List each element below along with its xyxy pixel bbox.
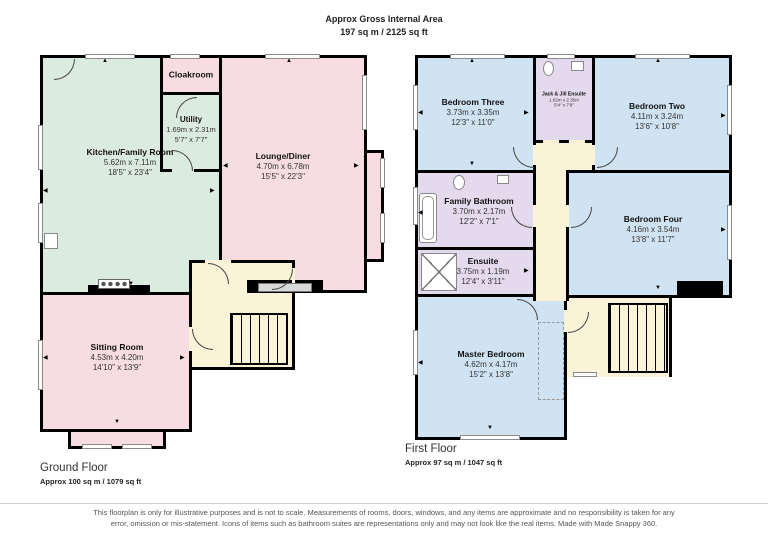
window-symbol <box>82 444 112 449</box>
measure-arrow-icon: ▶ <box>524 110 529 116</box>
measure-arrow-icon: ▶ <box>524 268 529 274</box>
floor-area: Approx 100 sq m / 1079 sq ft <box>40 477 141 486</box>
measure-arrow-icon: ▶ <box>210 188 215 194</box>
door-opening <box>564 310 567 332</box>
window-symbol <box>413 187 418 225</box>
bathtub-icon <box>419 193 437 243</box>
room-imperial: 15'5" x 22'3" <box>261 173 305 182</box>
room-metric: 3.70m x 2.17m <box>453 207 506 216</box>
room-imperial: 15'2" x 13'8" <box>469 371 513 380</box>
room-metric: 3.73m x 3.35m <box>447 108 500 117</box>
room-imperial: 12'2" x 7'1" <box>459 218 498 227</box>
measure-arrow-icon: ▶ <box>354 163 359 169</box>
measure-arrow-icon: ▶ <box>721 113 726 119</box>
door-opening <box>569 140 585 143</box>
room-imperial: 5'4" x 7'9" <box>554 103 574 108</box>
sink-icon <box>44 233 58 249</box>
room-label: Master Bedroom 4.62m x 4.17m 15'2" x 13'… <box>457 349 524 381</box>
window-symbol <box>727 205 732 260</box>
room-metric: 4.53m x 4.20m <box>91 353 144 362</box>
gross-area-value: 197 sq m / 2125 sq ft <box>0 26 768 39</box>
window-symbol <box>38 203 43 243</box>
window-symbol <box>380 158 385 188</box>
basin-icon <box>497 175 509 184</box>
room-name: Bedroom Four <box>624 214 683 225</box>
room-label: Ensuite 3.75m x 1.19m 12'4" x 3'11" <box>457 256 510 288</box>
room-imperial: 13'6" x 10'8" <box>635 123 679 132</box>
measure-arrow-icon: ▼ <box>128 281 134 287</box>
measure-arrow-icon: ◀ <box>418 360 423 366</box>
measure-arrow-icon: ▶ <box>721 227 726 233</box>
basin-icon <box>571 61 584 71</box>
window-symbol <box>38 125 43 170</box>
room-label: Jack & Jill Ensuite 1.62m x 2.35m 5'4" x… <box>542 92 586 109</box>
room-metric: 3.75m x 1.19m <box>457 267 510 276</box>
measure-arrow-icon: ◀ <box>418 110 423 116</box>
window-symbol <box>85 54 135 59</box>
room-name: Kitchen/Family Room <box>87 147 174 158</box>
ground-floor-plan: ▲ ▼ ◀ ▶ ▲ ▶ ◀ ▼ ◀ ▶ Kitchen/Family Room … <box>30 55 405 450</box>
gross-area-title: Approx Gross Internal Area <box>0 13 768 26</box>
room-label: Kitchen/Family Room 5.62m x 7.11m 18'5" … <box>87 147 174 179</box>
room-metric: 1.62m x 2.35m <box>549 98 579 103</box>
room-label: Bedroom Two 4.11m x 3.24m 13'6" x 10'8" <box>629 101 685 133</box>
window-symbol <box>460 435 520 440</box>
room-imperial: 13'8" x 11'7" <box>631 236 674 245</box>
room-name: Cloakroom <box>169 69 213 80</box>
room-label: Family Bathroom 3.70m x 2.17m 12'2" x 7'… <box>444 196 513 228</box>
stairs-symbol <box>230 313 288 365</box>
window-symbol <box>450 54 505 59</box>
window-symbol <box>413 330 418 375</box>
window-symbol <box>170 54 200 59</box>
plan-header: Approx Gross Internal Area 197 sq m / 21… <box>0 13 768 38</box>
ground-floor-caption: Ground Floor Approx 100 sq m / 1079 sq f… <box>40 462 141 486</box>
room-metric: 4.70m x 6.78m <box>257 162 310 171</box>
room-name: Sitting Room <box>91 342 144 353</box>
room-metric: 4.16m x 3.54m <box>627 225 680 234</box>
room-name: Bedroom Three <box>442 97 505 108</box>
measure-arrow-icon: ▲ <box>286 58 292 64</box>
room-name: Utility <box>166 115 216 125</box>
first-floor-plan: ▲ ▼ ◀ ▶ ▲ ▶ ▶ ▼ ◀ ▶ ◀ ▼ Bedroom Three 3.… <box>405 55 750 440</box>
window-symbol <box>727 85 732 135</box>
footer-divider <box>0 503 768 504</box>
room-metric: 4.11m x 3.24m <box>631 112 683 121</box>
first-floor-caption: First Floor Approx 97 sq m / 1047 sq ft <box>405 443 502 467</box>
room-imperial: 18'5" x 23'4" <box>108 169 152 178</box>
measure-arrow-icon: ◀ <box>418 210 423 216</box>
measure-arrow-icon: ▼ <box>487 425 493 431</box>
floor-name: First Floor <box>405 443 502 455</box>
window-symbol <box>635 54 690 59</box>
window-symbol <box>265 54 320 59</box>
measure-arrow-icon: ▲ <box>655 58 661 64</box>
room-name: Master Bedroom <box>457 349 524 360</box>
disclaimer-text: This floorplan is only for illustrative … <box>84 508 684 530</box>
door-opening <box>543 140 559 143</box>
window-symbol <box>362 75 367 130</box>
toilet-icon <box>453 175 465 190</box>
window-symbol <box>122 444 152 449</box>
stairs-symbol <box>608 303 668 373</box>
room-name: Lounge/Diner <box>256 151 311 162</box>
measure-arrow-icon: ▼ <box>114 419 120 425</box>
door-opening <box>592 145 595 165</box>
measure-arrow-icon: ▶ <box>180 355 185 361</box>
room-label: Lounge/Diner 4.70m x 6.78m 15'5" x 22'3" <box>256 151 311 183</box>
measure-arrow-icon: ▼ <box>655 285 661 291</box>
measure-arrow-icon: ◀ <box>43 188 48 194</box>
room-imperial: 12'4" x 3'11" <box>461 278 504 287</box>
room-label: Bedroom Three 3.73m x 3.35m 12'3" x 11'0… <box>442 97 505 129</box>
measure-arrow-icon: ◀ <box>223 163 228 169</box>
room-label: Cloakroom <box>169 69 213 80</box>
corridor <box>533 170 569 301</box>
room-label: Bedroom Four 4.16m x 3.54m 13'8" x 11'7" <box>624 214 683 246</box>
wardrobe-icon <box>538 322 564 400</box>
room-imperial: 14'10" x 13'9" <box>93 364 141 373</box>
toilet-icon <box>543 61 554 76</box>
room-name: Ensuite <box>457 256 510 267</box>
room-metric: 4.62m x 4.17m <box>465 360 518 369</box>
window-symbol <box>413 85 418 130</box>
door-opening <box>566 205 569 227</box>
room-label: Sitting Room 4.53m x 4.20m 14'10" x 13'9… <box>91 342 144 374</box>
room-metric: 1.69m x 2.31m <box>166 125 216 134</box>
room-name: Family Bathroom <box>444 196 513 207</box>
door-opening <box>533 205 536 227</box>
wall-section <box>677 281 723 297</box>
disclaimer-footer: This floorplan is only for illustrative … <box>0 503 768 531</box>
room-imperial: 12'3" x 11'0" <box>451 119 494 128</box>
room-label: Utility 1.69m x 2.31m 5'7" x 7'7" <box>166 115 216 145</box>
floor-area: Approx 97 sq m / 1047 sq ft <box>405 458 502 467</box>
window-symbol <box>547 54 575 59</box>
room-metric: 5.62m x 7.11m <box>104 158 156 167</box>
measure-arrow-icon: ▲ <box>102 58 108 64</box>
measure-arrow-icon: ▲ <box>469 58 475 64</box>
window-symbol <box>573 372 597 377</box>
landing-upper <box>533 140 595 173</box>
shower-icon <box>421 253 457 291</box>
hob-icon <box>98 279 130 289</box>
measure-arrow-icon: ▼ <box>469 161 475 167</box>
measure-arrow-icon: ◀ <box>43 355 48 361</box>
floor-name: Ground Floor <box>40 462 141 474</box>
window-symbol <box>380 213 385 243</box>
room-imperial: 5'7" x 7'7" <box>175 135 208 144</box>
room-name: Bedroom Two <box>629 101 685 112</box>
window-symbol <box>38 340 43 390</box>
